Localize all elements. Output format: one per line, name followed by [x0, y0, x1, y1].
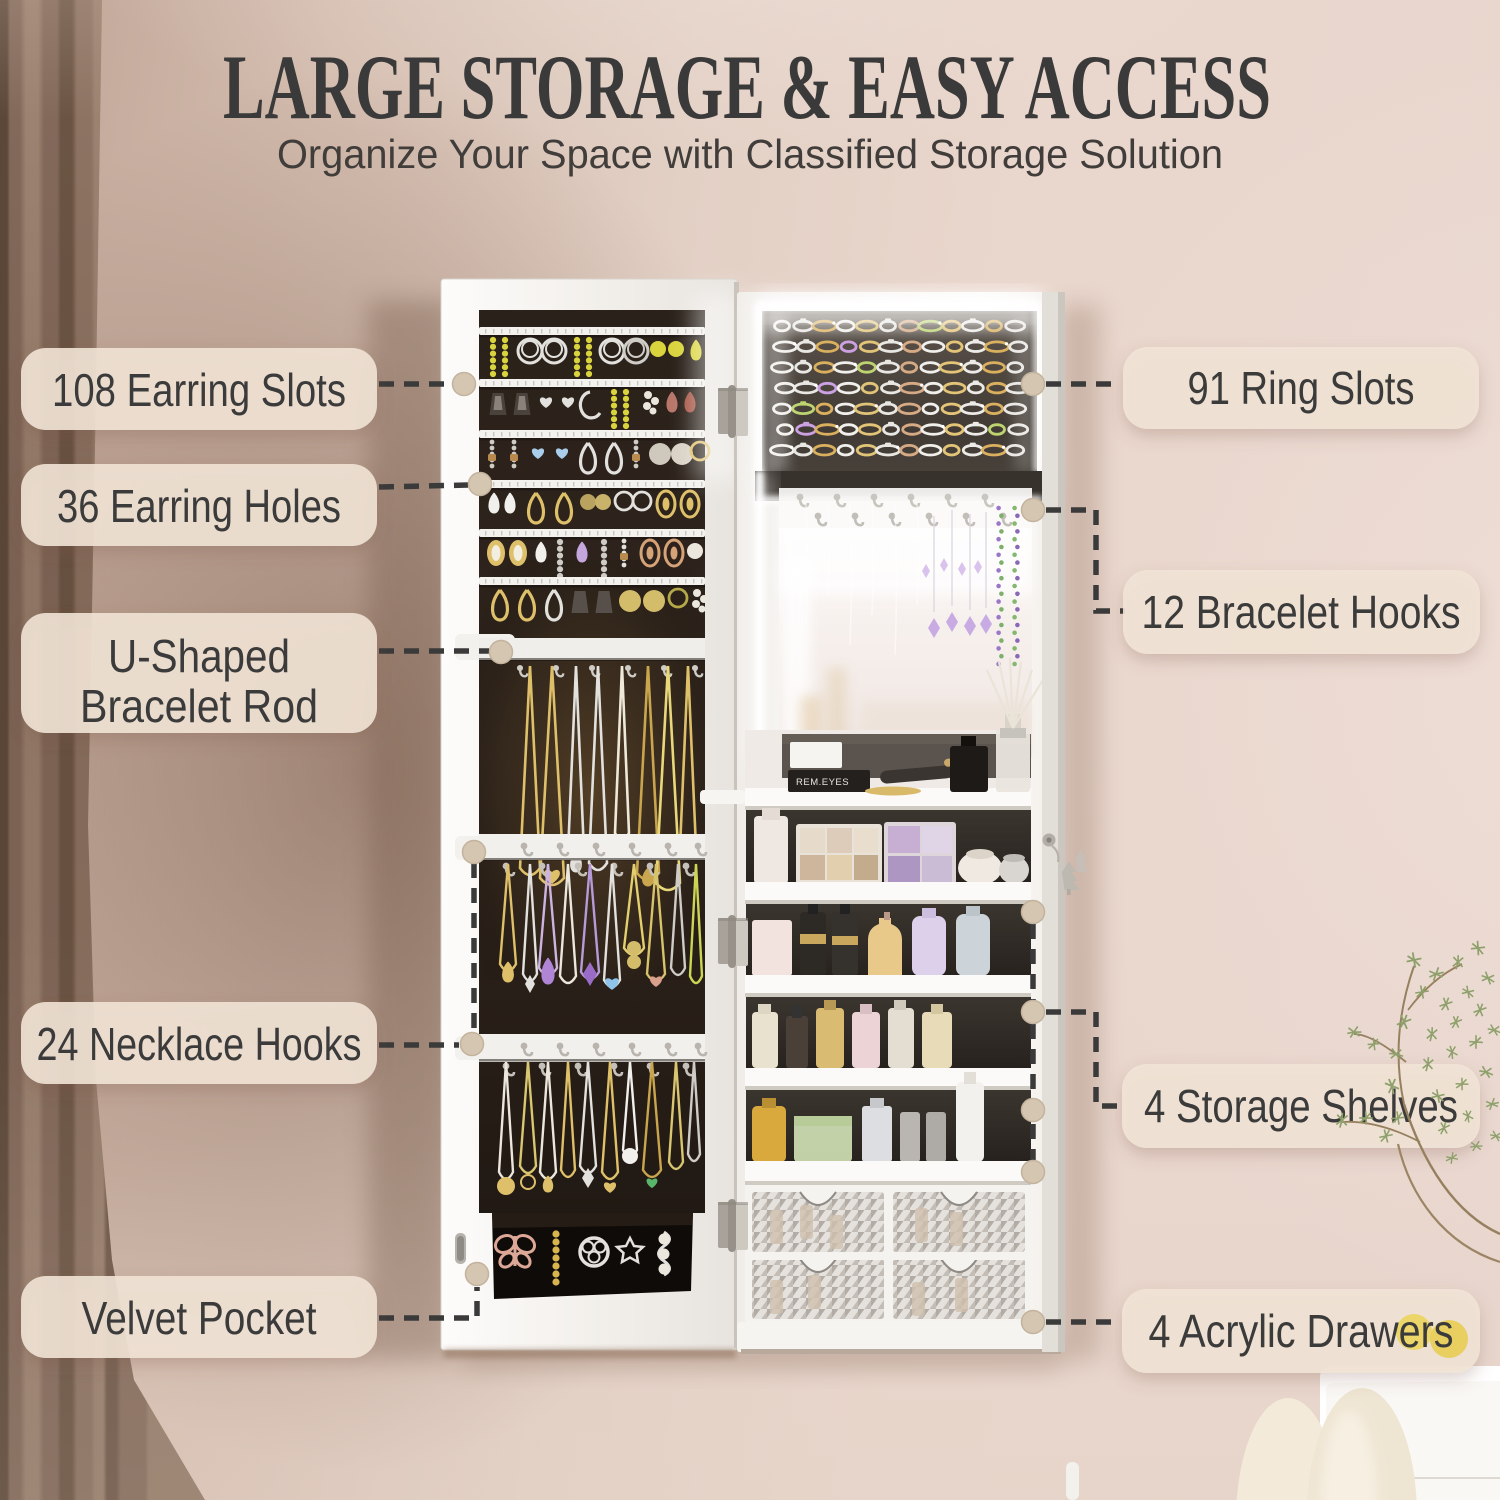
svg-text:36 Earring Holes: 36 Earring Holes — [57, 480, 341, 532]
svg-text:91 Ring Slots: 91 Ring Slots — [1188, 362, 1415, 414]
svg-text:12 Bracelet Hooks: 12 Bracelet Hooks — [1142, 586, 1461, 638]
svg-text:U-Shaped: U-Shaped — [108, 630, 290, 682]
svg-text:108 Earring Slots: 108 Earring Slots — [52, 364, 346, 416]
svg-text:24 Necklace Hooks: 24 Necklace Hooks — [37, 1018, 362, 1070]
svg-text:Bracelet Rod: Bracelet Rod — [80, 680, 318, 732]
svg-text:4 Acrylic Drawers: 4 Acrylic Drawers — [1149, 1305, 1454, 1357]
svg-text:REM.EYES: REM.EYES — [796, 777, 849, 788]
svg-text:Organize Your Space with Class: Organize Your Space with Classified Stor… — [277, 131, 1223, 177]
svg-text:Velvet Pocket: Velvet Pocket — [82, 1292, 317, 1344]
svg-text:LARGE STORAGE & EASY ACCESS: LARGE STORAGE & EASY ACCESS — [223, 36, 1271, 138]
